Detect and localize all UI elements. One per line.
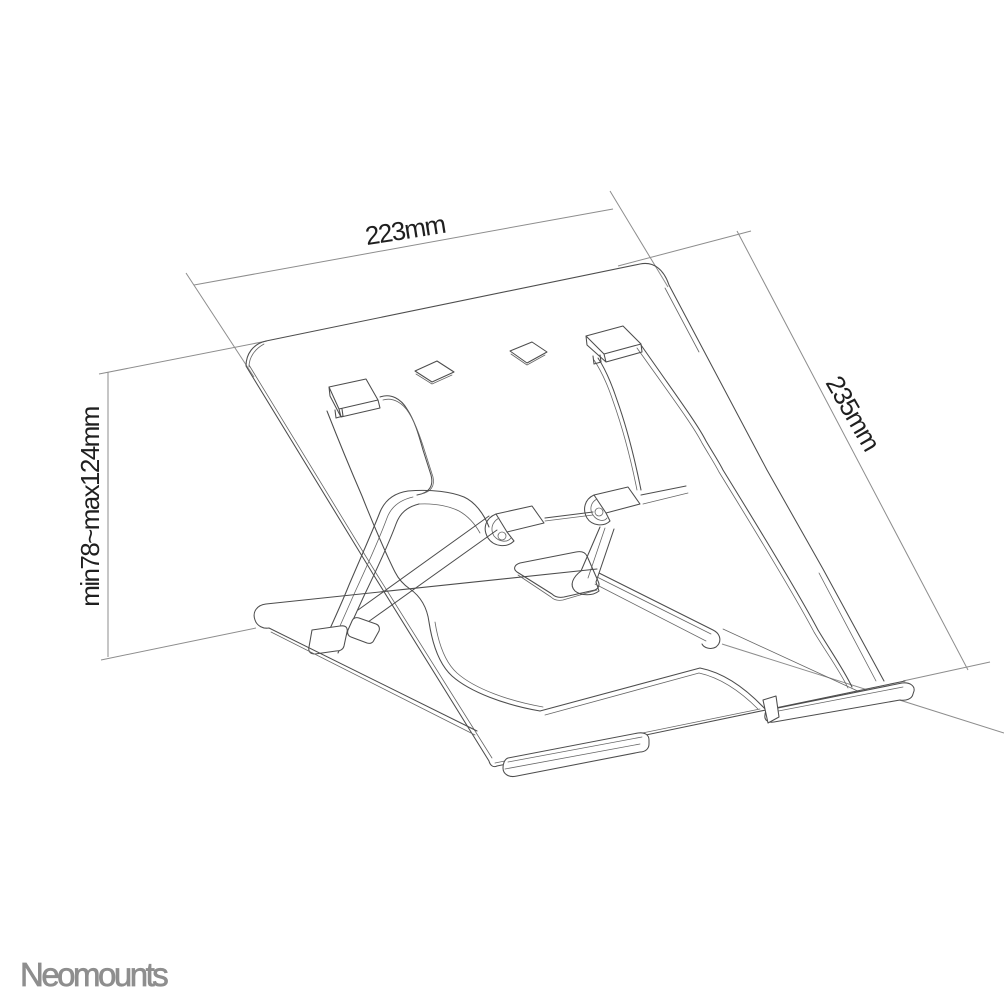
svg-text:Neomounts: Neomounts bbox=[20, 956, 168, 993]
svg-text:min78~max124mm: min78~max124mm bbox=[75, 407, 105, 606]
